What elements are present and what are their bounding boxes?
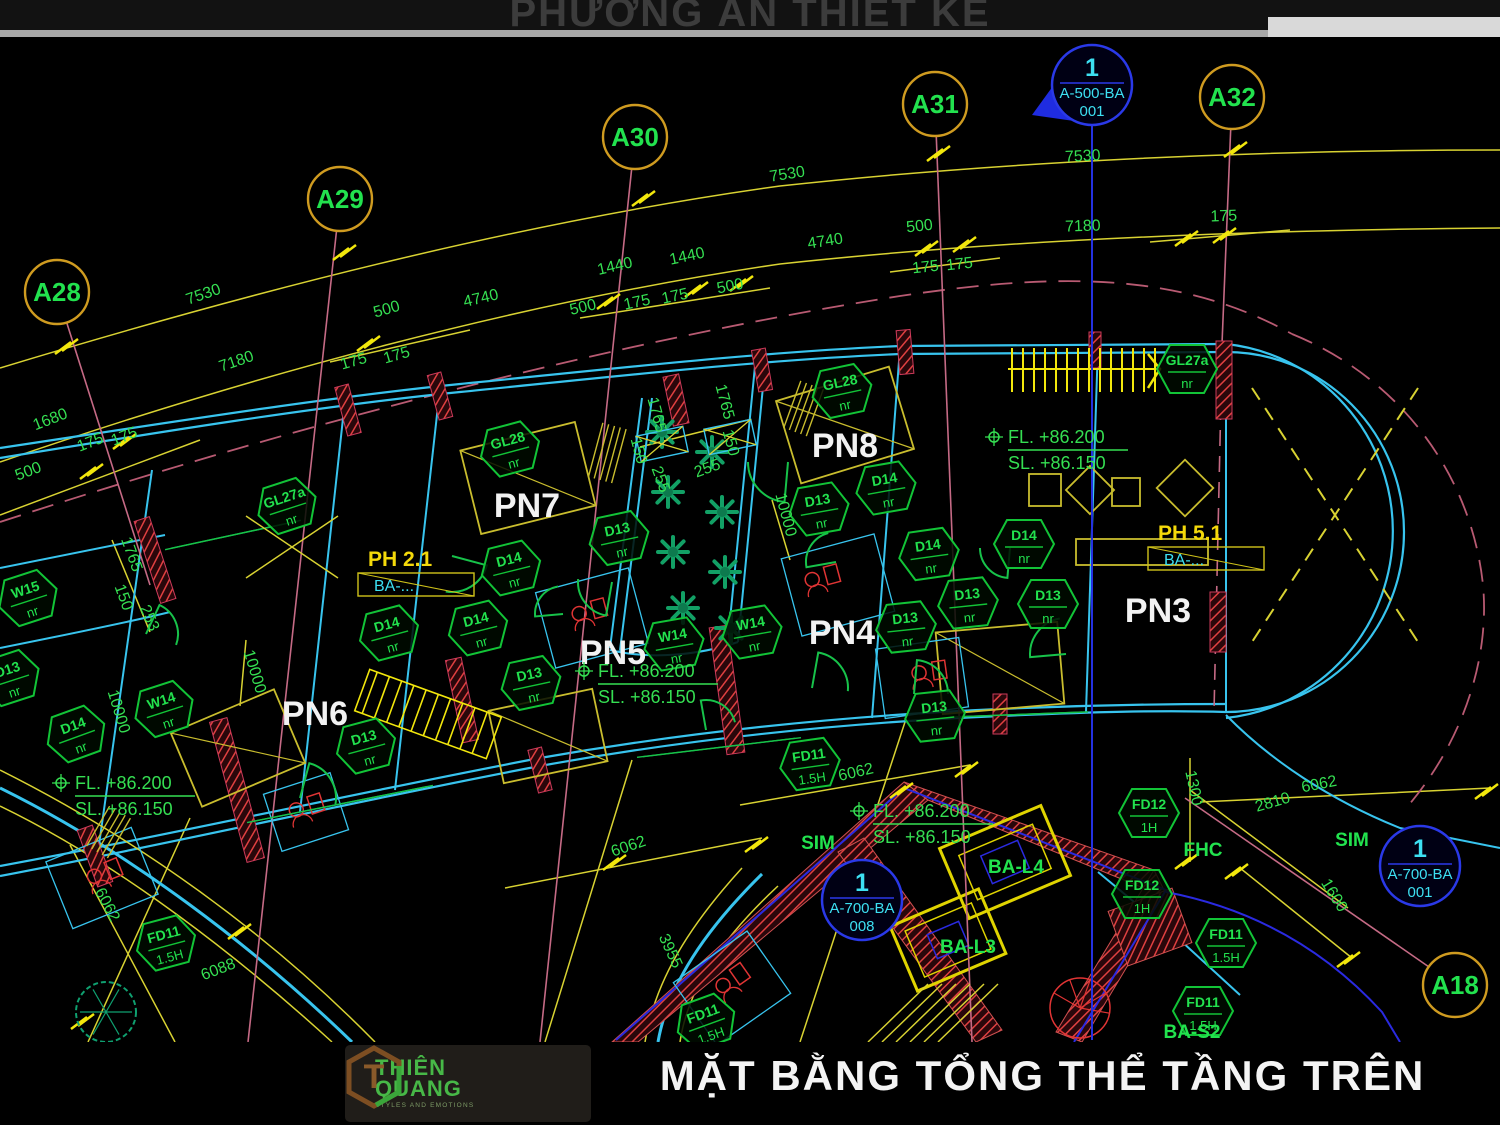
dim-175: 175 (660, 285, 690, 307)
marker-ref: 001 (1407, 884, 1432, 901)
tag-sub: 1H (1141, 820, 1158, 835)
tick (78, 1014, 94, 1026)
level-fl: FL. +86.200 (598, 661, 695, 681)
tag-sub: nr (901, 633, 915, 649)
grid-bubble-A30: A30 (603, 105, 667, 169)
level-fl: FL. +86.200 (75, 773, 172, 793)
tag-D14: D14nr (852, 459, 919, 517)
tag-hexagon (0, 566, 64, 630)
dim-label: 10000 (104, 688, 133, 736)
tag-FD11: FD111.5H (777, 736, 843, 792)
walls-partitions (0, 344, 1500, 995)
tag-sub: nr (1042, 611, 1054, 626)
tick (80, 467, 96, 479)
dim-255: 255 (692, 456, 723, 481)
window (643, 738, 801, 757)
door-swing (806, 533, 836, 567)
door-swing (446, 556, 487, 592)
dim-1440: 1440 (596, 254, 635, 279)
tag-D13: D13nr (497, 653, 566, 712)
tag-D14: D14nr (354, 602, 424, 664)
label-BA-S2: BA-S2 (1163, 1022, 1220, 1043)
marker-number: 1 (1413, 835, 1427, 863)
tag-GL28: GL28nr (475, 418, 545, 480)
tick (1182, 231, 1198, 243)
ph-label: PH 2.1BA-... (358, 548, 474, 596)
tag-code: D13 (953, 585, 980, 604)
section-marker: 1A-700-BA008 (822, 860, 902, 940)
dim-label: 7530 (184, 281, 223, 309)
dim-label: 255 (692, 456, 723, 481)
dim-10000: 10000 (104, 688, 133, 736)
misc-label: SIM (801, 833, 835, 854)
tree-icon (76, 982, 136, 1042)
dim-label: 2810 (1253, 790, 1292, 816)
logo: T THIÊN QUANG STYLES AND EMOTIONS (345, 1045, 591, 1122)
level-sl: SL. +86.150 (598, 687, 696, 707)
dim-500: 500 (905, 217, 933, 237)
tag-D14: D14nr (443, 597, 513, 658)
stair-top-right (1008, 348, 1160, 392)
tick (692, 282, 708, 294)
header-accent-bar (1268, 17, 1500, 37)
tag-D13: D13nr (0, 646, 46, 710)
tick (962, 762, 978, 774)
tag-sub: 1H (1134, 901, 1151, 916)
grid-bubble-A31: A31 (903, 72, 967, 136)
dim-label: 500 (13, 459, 44, 484)
dim-6062: 6062 (837, 760, 876, 785)
dim-175: 175 (382, 344, 412, 368)
dim-label: 175 (911, 258, 939, 278)
dim-175: 175 (1210, 208, 1237, 226)
furniture-item (1112, 478, 1140, 506)
column (993, 694, 1007, 734)
tag-W14: W14nr (128, 677, 200, 741)
ph-sub: BA-... (1164, 552, 1204, 569)
room-label: PN8 (812, 427, 878, 465)
floor-plan-canvas: A28A29A30A31A32A181A-500-BA0011A-700-BA0… (0, 0, 1500, 1125)
tag-code: D13 (891, 609, 918, 628)
dim-7530: 7530 (184, 281, 223, 309)
room-label: PN7 (494, 487, 560, 525)
plant-icon (658, 537, 688, 567)
drawing-title: MẶT BẰNG TỔNG THỂ TẦNG TRÊN (595, 1052, 1490, 1100)
grid-bubble-label: A18 (1431, 970, 1479, 1000)
tag-hexagon (128, 677, 200, 741)
grid-bubble-A28: A28 (25, 260, 89, 324)
tick (639, 191, 655, 203)
section-marker: 1A-500-BA001 (1032, 45, 1132, 125)
marker-sheet: A-700-BA (1387, 866, 1452, 883)
dim-175: 175 (911, 258, 939, 278)
grid-bubble-A18: A18 (1423, 953, 1487, 1017)
dim-label: 175 (660, 285, 690, 307)
tag-sub: nr (963, 609, 977, 625)
tick (953, 240, 969, 252)
column (210, 718, 265, 863)
room-label-PN6: PN6 (282, 695, 348, 733)
dim-1765: 1765 (712, 382, 738, 421)
room-label-PN4: PN4 (809, 614, 875, 652)
label-BA-L3: BA-L3 (940, 937, 996, 958)
grid-bubble-A29: A29 (308, 167, 372, 231)
tick (922, 241, 938, 253)
dim-label: 500 (715, 276, 745, 298)
dim-label: 3955 (655, 931, 685, 971)
dim-10000: 10000 (240, 648, 269, 696)
dim-label: 6062 (609, 833, 648, 861)
tick (235, 924, 251, 936)
tick (927, 149, 943, 161)
dim-7530: 7530 (768, 163, 806, 185)
tick (1231, 142, 1247, 154)
level-sl: SL. +86.150 (1008, 453, 1106, 473)
logo-monogram: T (364, 1058, 385, 1096)
dim-500: 500 (13, 459, 44, 484)
marker-number: 1 (855, 869, 869, 897)
furniture-item (1029, 474, 1061, 506)
tag-FD12: FD121H (1112, 870, 1172, 918)
dim-label: 175 (945, 255, 973, 275)
tag-D13: D13nr (936, 576, 1001, 630)
tag-FD11: FD111.5H (1196, 919, 1256, 967)
room-label-PN3: PN3 (1125, 592, 1191, 630)
tag-hexagon (0, 646, 46, 710)
dim-1440: 1440 (668, 245, 706, 269)
footer: T THIÊN QUANG STYLES AND EMOTIONS MẶT BẰ… (0, 1042, 1500, 1125)
label-SIM: SIM (801, 833, 835, 854)
misc-label: BA-L4 (988, 857, 1044, 878)
ph-sub: BA-... (374, 578, 414, 595)
dim-label: 4740 (806, 230, 844, 252)
dim-label: 255 (648, 464, 673, 495)
plant-icon (707, 497, 737, 527)
level-annotation: FL. +86.200SL. +86.150 (52, 773, 195, 819)
room-label: PN3 (1125, 592, 1191, 630)
dim-500: 500 (715, 276, 745, 298)
tag-D14: D14nr (476, 537, 546, 598)
dim-label: 175 (1210, 208, 1237, 226)
column (1216, 341, 1232, 419)
tag-W15: W15nr (0, 566, 64, 630)
tag-code: FD11 (1209, 926, 1243, 942)
tag-D13: D13nr (1018, 580, 1078, 628)
dim-label: 6062 (1300, 773, 1338, 796)
dim-label: 1440 (596, 254, 635, 279)
misc-label: SIM (1335, 830, 1369, 851)
tag-FD12: FD121H (1119, 789, 1179, 837)
tag-code: GL27a (1166, 352, 1209, 368)
dim-175: 175 (945, 255, 973, 275)
tag-D14: D14nr (994, 520, 1054, 568)
dim-label: 175 (382, 344, 412, 368)
marker-number: 1 (1085, 54, 1099, 82)
column (335, 384, 361, 436)
dim-6062: 6062 (609, 833, 648, 861)
tag-GL27a: GL27anr (1157, 345, 1217, 393)
dim-label: 500 (905, 217, 933, 237)
tick (340, 245, 356, 257)
dim-label: 7180 (217, 348, 256, 376)
tag-FD11: FD111.5H (131, 912, 201, 974)
dim-6062: 6062 (1300, 773, 1338, 796)
dim-label: 175 (339, 350, 369, 374)
tag-code: FD11 (1186, 994, 1220, 1010)
tick (1482, 784, 1498, 796)
tick (228, 927, 244, 939)
ph-title: PH 5.1 (1158, 522, 1223, 545)
tag-code: D13 (920, 698, 947, 717)
tick (597, 297, 613, 309)
dim-6088: 6088 (199, 955, 238, 984)
level-sl: SL. +86.150 (75, 799, 173, 819)
door-swing (812, 653, 848, 692)
room-label-PN7: PN7 (494, 487, 560, 525)
tick (745, 840, 761, 852)
tick (87, 464, 103, 476)
dim-label: 7530 (768, 163, 806, 185)
dim-label: 1765 (712, 382, 738, 421)
label-SIM: SIM (1335, 830, 1369, 851)
marker-sheet: A-700-BA (829, 900, 894, 917)
dim-255: 255 (648, 464, 673, 495)
dim-label: 6088 (199, 955, 238, 984)
dim-label: 10000 (240, 648, 269, 696)
closet-comb (588, 423, 626, 483)
dim-4740: 4740 (462, 286, 501, 311)
tag-sub: 1.5H (1212, 950, 1239, 965)
column (1210, 592, 1226, 652)
tick (632, 194, 648, 206)
furniture-item (1066, 466, 1114, 514)
tick (1225, 867, 1241, 879)
grid-bubble-label: A30 (611, 122, 659, 152)
grid-bubble-label: A28 (33, 277, 81, 307)
marker-ref: 001 (1079, 103, 1104, 120)
tag-code: FD12 (1132, 796, 1166, 812)
misc-label: BA-L3 (940, 937, 996, 958)
slide: A28A29A30A31A32A181A-500-BA0011A-700-BA0… (0, 0, 1500, 1125)
tick (333, 248, 349, 260)
dim-4740: 4740 (806, 230, 844, 252)
dim-label: 7180 (1065, 217, 1101, 235)
section-marker: 1A-700-BA001 (1380, 826, 1460, 906)
logo-hexagon-icon: T (345, 1045, 403, 1109)
grid-bubble-label: A32 (1208, 82, 1256, 112)
grid-line (248, 199, 340, 1042)
misc-label: BA-S2 (1163, 1022, 1220, 1043)
dimension-chains (0, 150, 1500, 1042)
dim-175: 175 (339, 350, 369, 374)
dim-2810: 2810 (1253, 790, 1292, 816)
dim-1300: 1300 (1181, 769, 1205, 807)
tag-code: D13 (1035, 587, 1061, 603)
marker-sheet: A-500-BA (1059, 85, 1124, 102)
door-swing (535, 586, 563, 616)
grid-bubble-label: A31 (911, 89, 959, 119)
dim-label: 500 (372, 298, 402, 322)
furniture-item (1157, 460, 1214, 517)
dim-label: 175 (622, 291, 652, 313)
plant-icon (710, 557, 740, 587)
dim-label: 1680 (31, 405, 70, 434)
tick (1232, 864, 1248, 876)
level-annotation: FL. +86.200SL. +86.150 (985, 427, 1128, 473)
grid-bubble-A32: A32 (1200, 65, 1264, 129)
tag-D14: D14nr (40, 701, 113, 767)
room-label-PN8: PN8 (812, 427, 878, 465)
level-fl: FL. +86.200 (873, 801, 970, 821)
tag-sub: nr (1018, 551, 1030, 566)
tag-hexagon (40, 701, 113, 767)
dim-label: 6062 (837, 760, 876, 785)
column (528, 747, 552, 793)
tick (364, 336, 380, 348)
dim-1680: 1680 (31, 405, 70, 434)
ph-label: PH 5.1BA-... (1148, 522, 1264, 570)
room-label: PN4 (809, 614, 875, 652)
dim-label: 1440 (668, 245, 706, 269)
room-label: PN6 (282, 695, 348, 733)
dim-label: 7530 (1065, 147, 1102, 166)
dim-3955: 3955 (655, 931, 685, 971)
dim-7180: 7180 (217, 348, 256, 376)
grid-bubble-label: A29 (316, 184, 364, 214)
dim-label: 1300 (1181, 769, 1205, 807)
dim-label: 4740 (462, 286, 501, 311)
tag-code: FD12 (1125, 877, 1159, 893)
ph-title: PH 2.1 (368, 548, 433, 571)
misc-label: FHC (1183, 840, 1222, 861)
tag-sub: nr (1181, 376, 1193, 391)
dim-500: 500 (372, 298, 402, 322)
tag-GL28: GL28nr (808, 361, 877, 420)
level-fl: FL. +86.200 (1008, 427, 1105, 447)
tag-code: D14 (1011, 527, 1037, 543)
tag-D13: D13nr (874, 600, 939, 654)
level-sl: SL. +86.150 (873, 827, 971, 847)
tick (1337, 955, 1353, 967)
dim-7530: 7530 (1065, 147, 1102, 166)
tag-sub: nr (930, 722, 944, 738)
label-BA-L4: BA-L4 (988, 857, 1044, 878)
bath-fixture (802, 564, 842, 597)
grid-bubbles: A28A29A30A31A32A18 (25, 65, 1487, 1017)
door-swing (578, 579, 612, 615)
dim-175: 175 (622, 291, 652, 313)
dim-7180: 7180 (1065, 217, 1101, 235)
marker-ref: 008 (849, 918, 874, 935)
window (253, 785, 433, 821)
label-FHC: FHC (1183, 840, 1222, 861)
